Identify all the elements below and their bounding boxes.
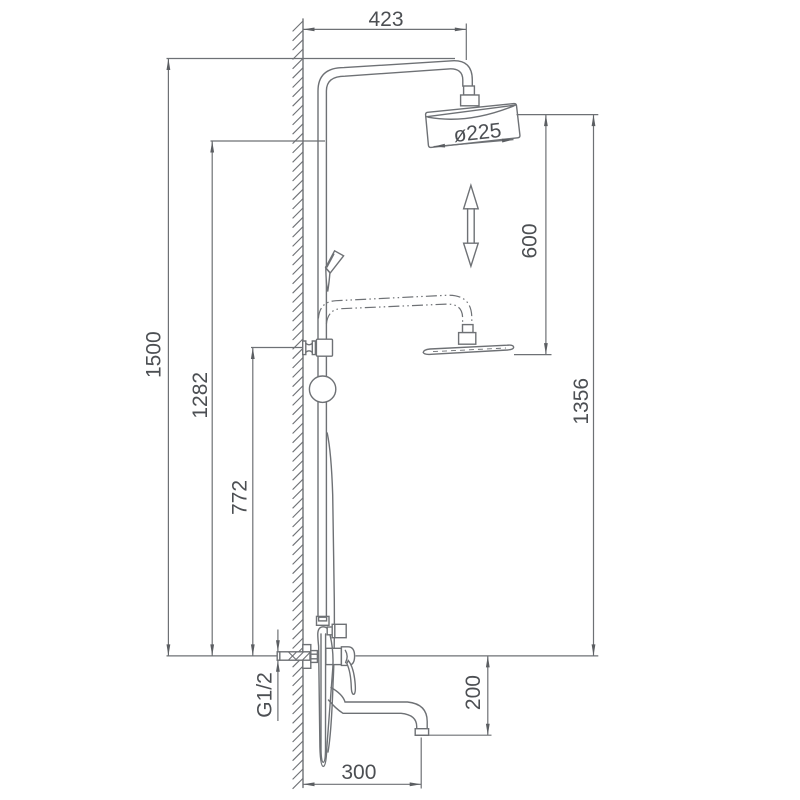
- svg-text:772: 772: [229, 480, 252, 515]
- svg-text:423: 423: [368, 8, 403, 31]
- svg-text:1356: 1356: [570, 378, 593, 425]
- svg-text:300: 300: [341, 761, 376, 784]
- svg-text:600: 600: [518, 223, 541, 258]
- svg-text:1282: 1282: [189, 372, 212, 419]
- svg-text:200: 200: [462, 675, 485, 710]
- svg-text:1500: 1500: [143, 331, 166, 378]
- svg-text:G1/2: G1/2: [254, 672, 277, 718]
